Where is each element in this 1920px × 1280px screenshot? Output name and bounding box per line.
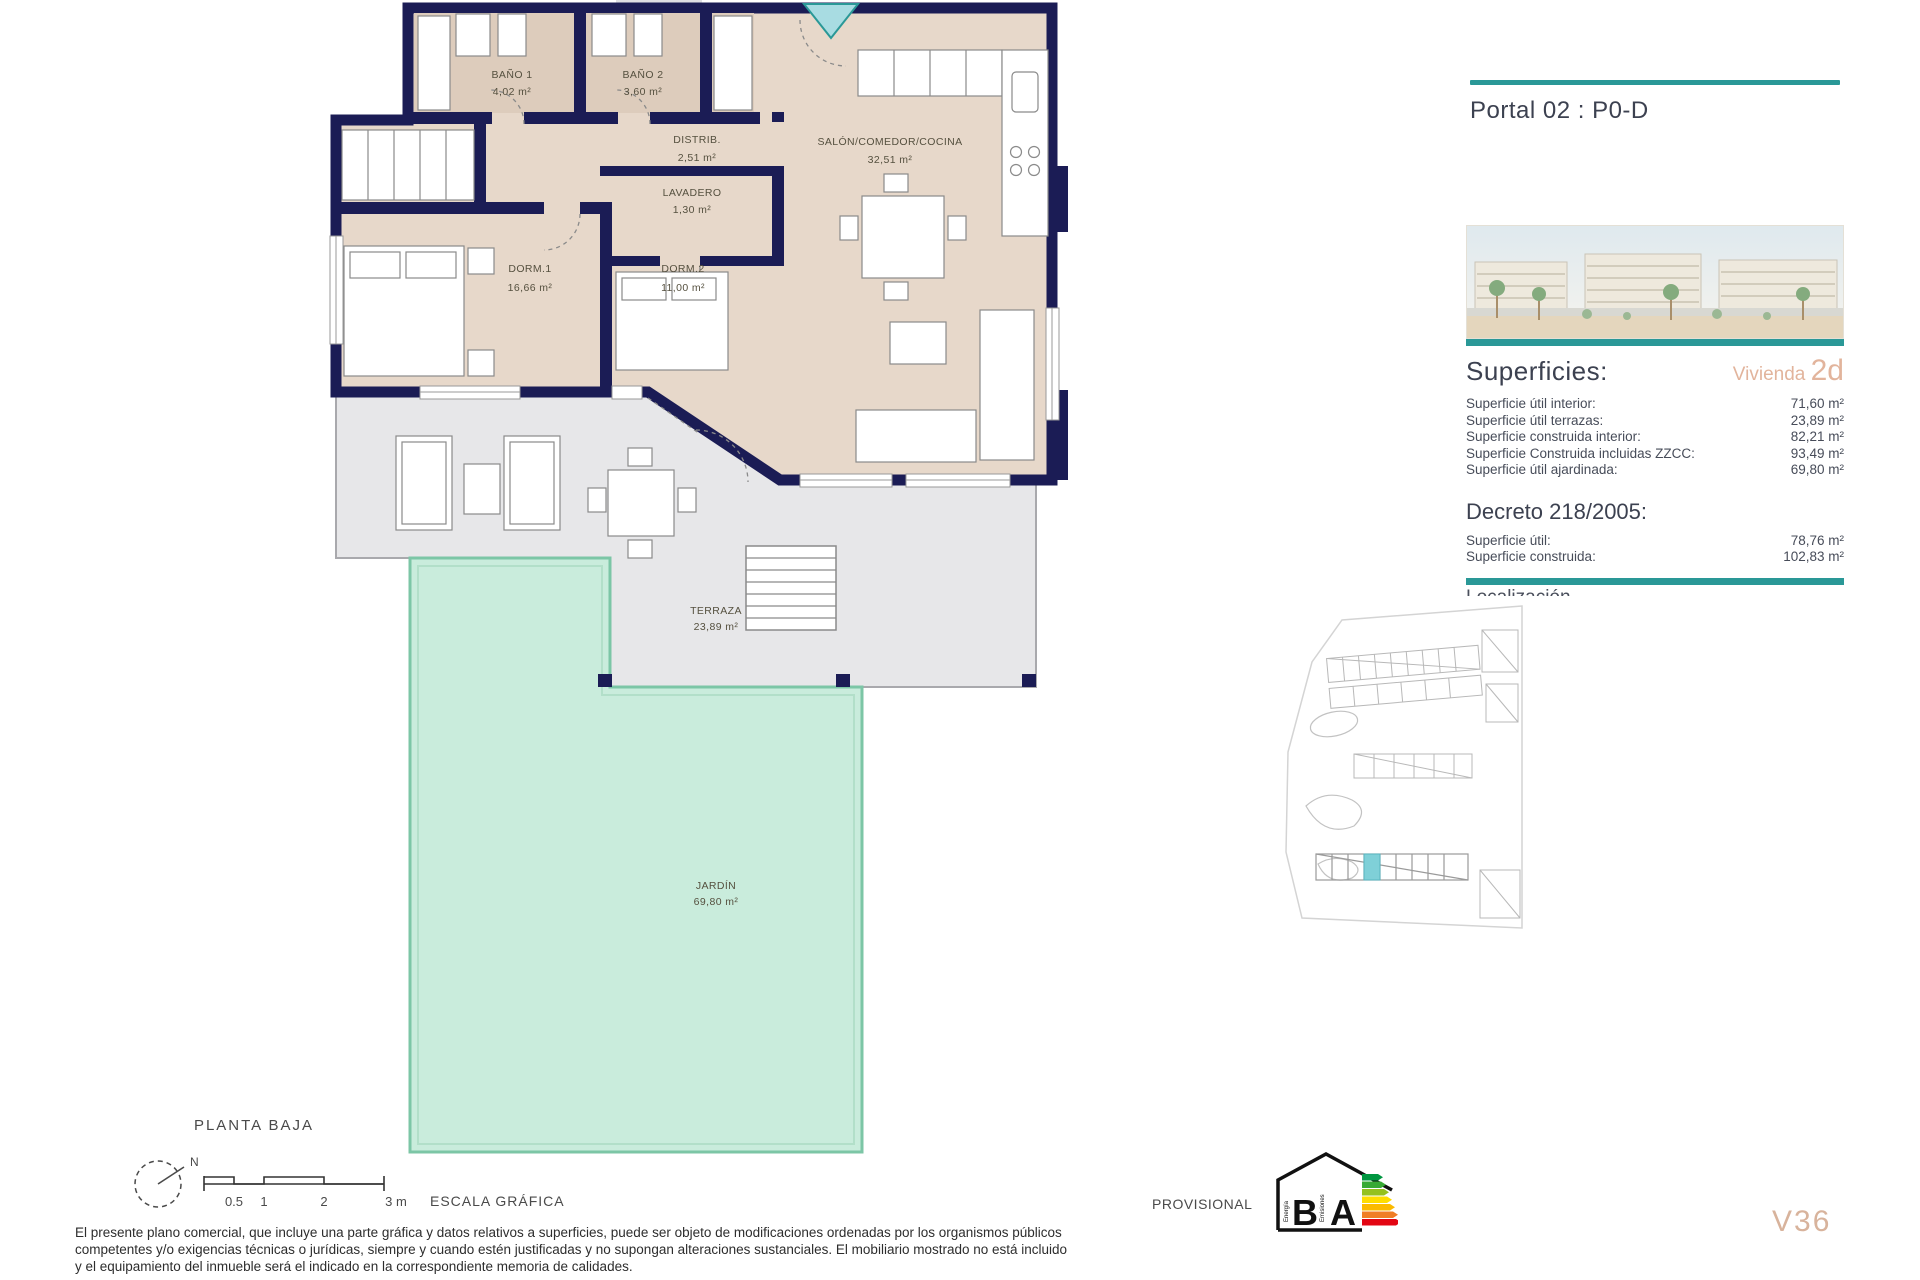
legal-disclaimer: El presente plano comercial, que incluye…	[75, 1224, 1205, 1275]
row-label: Superficie construida interior:	[1466, 429, 1641, 446]
disclaimer-line: y el equipamiento del inmueble será el i…	[75, 1258, 1205, 1275]
energy-arrows	[1362, 1174, 1398, 1226]
info-panel: Portal 02 : P0-D	[1466, 80, 1844, 596]
row-value: 93,49 m²	[1791, 446, 1844, 463]
north-compass-icon: N	[135, 1155, 199, 1207]
superficies-table: Superficie útil interior:71,60 m² Superf…	[1466, 396, 1844, 479]
compass-north-label: N	[190, 1155, 199, 1169]
energy-emisiones-label: Emisiones	[1320, 1194, 1326, 1222]
divider	[1470, 80, 1840, 85]
table-row: Superficie útil:78,76 m²	[1466, 533, 1844, 550]
floor-plan-sheet: BAÑO 1 4,02 m² BAÑO 2 3,60 m² DISTRIB. 2…	[0, 0, 1920, 1280]
room-area-terraza: 23,89 m²	[694, 621, 739, 633]
room-label-dorm2: DORM.2	[661, 263, 704, 275]
room-label-jardin: JARDÍN	[696, 879, 736, 892]
decreto-heading: Decreto 218/2005:	[1466, 499, 1844, 525]
room-area-lavadero: 1,30 m²	[673, 204, 711, 216]
scale-tick-3m: 3 m	[385, 1194, 407, 1209]
portal-title: Portal 02 : P0-D	[1470, 97, 1844, 125]
disclaimer-line: competentes y/o exigencias técnicas o ju…	[75, 1241, 1205, 1258]
table-row: Superficie construida interior:82,21 m²	[1466, 429, 1844, 446]
row-value: 102,83 m²	[1783, 549, 1844, 566]
row-label: Superficie construida:	[1466, 549, 1596, 566]
energy-energia-label: Energía	[1284, 1200, 1290, 1222]
scale-bar: 0.5 1 2 3 m ESCALA GRÁFICA	[204, 1176, 565, 1209]
render-illustration	[1467, 226, 1844, 338]
row-label: Superficie Construida incluidas ZZCC:	[1466, 446, 1695, 463]
room-label-dorm1: DORM.1	[508, 263, 551, 275]
room-label-salon: SALÓN/COMEDOR/COCINA	[817, 135, 962, 148]
room-area-jardin: 69,80 m²	[694, 896, 739, 908]
room-label-terraza: TERRAZA	[690, 605, 742, 617]
room-area-dorm2: 11,00 m²	[661, 282, 705, 294]
room-area-dorm1: 16,66 m²	[508, 282, 553, 294]
room-area-bano2: 3,60 m²	[624, 86, 662, 98]
table-row: Superficie útil interior:71,60 m²	[1466, 396, 1844, 413]
vivienda-label: Vivienda	[1733, 364, 1806, 385]
room-area-bano1: 4,02 m²	[493, 86, 531, 98]
site-plan	[1272, 602, 1534, 932]
row-value: 69,80 m²	[1791, 462, 1844, 479]
room-area-salon: 32,51 m²	[868, 154, 913, 166]
clipped-heading-text: Localización	[1466, 589, 1844, 596]
vivienda-tag: Vivienda 2d	[1733, 354, 1844, 388]
row-value: 23,89 m²	[1791, 413, 1844, 430]
superficies-heading: Superficies:	[1466, 356, 1608, 387]
scale-caption: ESCALA GRÁFICA	[430, 1193, 565, 1209]
room-label-lavadero: LAVADERO	[663, 187, 722, 199]
table-row: Superficie útil terrazas:23,89 m²	[1466, 413, 1844, 430]
divider	[1466, 578, 1844, 585]
decreto-table: Superficie útil:78,76 m² Superficie cons…	[1466, 533, 1844, 566]
room-label-bano2: BAÑO 2	[623, 68, 664, 81]
row-label: Superficie útil:	[1466, 533, 1551, 550]
garden-stairs	[746, 546, 836, 630]
table-row: Superficie Construida incluidas ZZCC:93,…	[1466, 446, 1844, 463]
scale-tick-05: 0.5	[225, 1194, 243, 1209]
table-row: Superficie construida:102,83 m²	[1466, 549, 1844, 566]
disclaimer-line: El presente plano comercial, que incluye…	[75, 1224, 1205, 1241]
plan-title: PLANTA BAJA	[194, 1117, 314, 1134]
row-value: 78,76 m²	[1791, 533, 1844, 550]
energy-rating-icon: Energía B Emisiones A	[1268, 1140, 1398, 1235]
energy-letter-a: A	[1330, 1192, 1356, 1233]
vivienda-code: 2d	[1811, 354, 1844, 387]
room-label-distrib: DISTRIB.	[673, 134, 721, 146]
site-plan-highlighted-unit	[1364, 854, 1380, 880]
provisional-label: PROVISIONAL	[1152, 1196, 1252, 1212]
clipped-heading: Localización	[1466, 589, 1844, 596]
row-label: Superficie útil interior:	[1466, 396, 1596, 413]
table-row: Superficie útil ajardinada:69,80 m²	[1466, 462, 1844, 479]
row-label: Superficie útil ajardinada:	[1466, 462, 1618, 479]
building-render-image	[1466, 225, 1844, 339]
row-value: 71,60 m²	[1791, 396, 1844, 413]
room-area-distrib: 2,51 m²	[678, 152, 716, 164]
scale-tick-1: 1	[260, 1194, 267, 1209]
unit-code: V36	[1772, 1205, 1831, 1239]
row-label: Superficie útil terrazas:	[1466, 413, 1603, 430]
divider	[1466, 339, 1844, 346]
row-value: 82,21 m²	[1791, 429, 1844, 446]
scale-tick-2: 2	[320, 1194, 327, 1209]
energy-letter-b: B	[1292, 1192, 1318, 1233]
room-label-bano1: BAÑO 1	[492, 68, 533, 81]
